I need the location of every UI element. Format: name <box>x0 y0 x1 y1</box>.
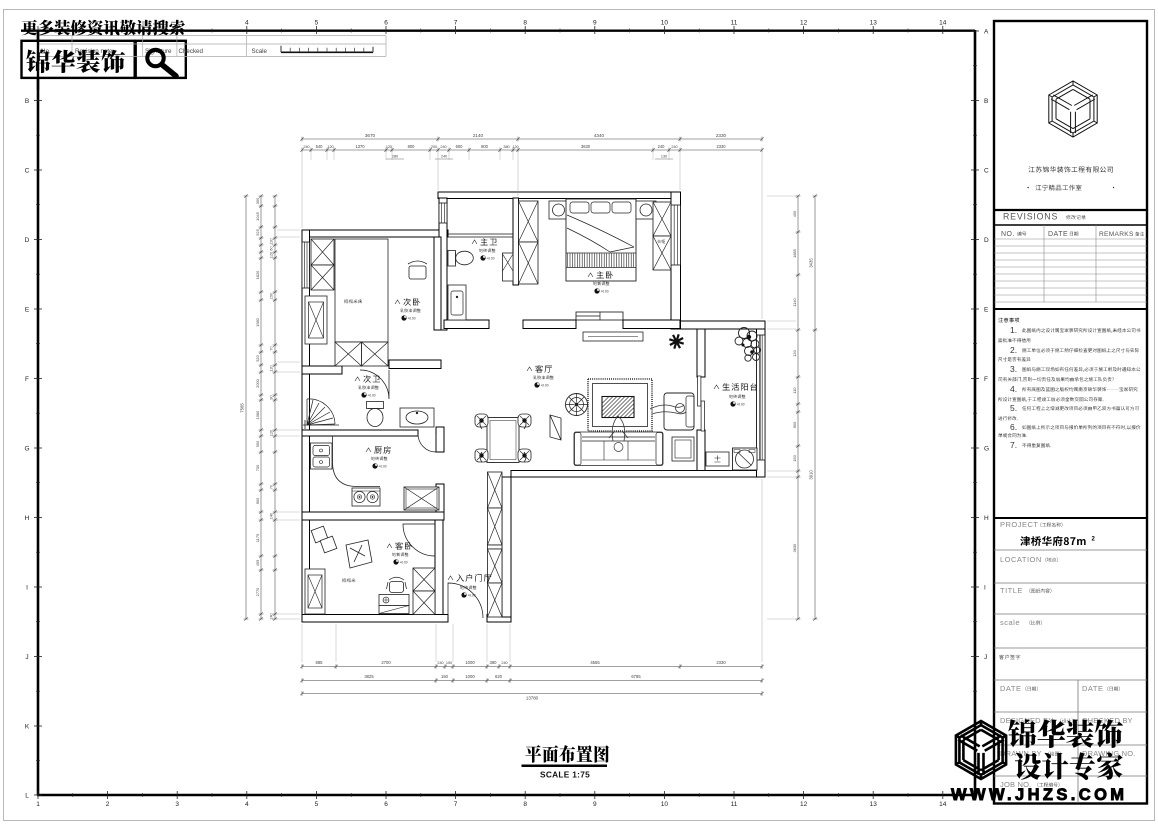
svg-text:90: 90 <box>270 395 274 399</box>
svg-text:NO.: NO. <box>1001 231 1015 238</box>
svg-text:150: 150 <box>441 674 449 679</box>
svg-text:4555: 4555 <box>590 660 600 665</box>
svg-text:C: C <box>25 167 30 174</box>
svg-text:240: 240 <box>441 155 447 159</box>
svg-text:I: I <box>984 584 986 591</box>
svg-text:2000: 2000 <box>255 378 260 387</box>
svg-text:1000: 1000 <box>465 674 475 679</box>
svg-text:120: 120 <box>792 349 797 356</box>
svg-text:+0.00: +0.00 <box>408 317 416 321</box>
svg-text:F: F <box>984 376 988 383</box>
svg-text:70: 70 <box>270 485 274 489</box>
svg-text:8: 8 <box>523 801 527 808</box>
svg-text:G: G <box>984 445 989 452</box>
svg-text:B: B <box>984 98 988 105</box>
svg-text:10: 10 <box>661 20 669 27</box>
svg-text:2330: 2330 <box>716 660 726 665</box>
svg-text:280: 280 <box>392 155 398 159</box>
svg-text:3630: 3630 <box>792 543 797 552</box>
svg-text:7: 7 <box>454 20 458 27</box>
svg-text:1820: 1820 <box>255 270 260 279</box>
svg-text:4: 4 <box>245 20 249 27</box>
svg-text:6: 6 <box>384 801 388 808</box>
svg-text:620: 620 <box>495 674 503 679</box>
svg-text:200: 200 <box>431 145 437 149</box>
svg-text:3435: 3435 <box>809 258 814 268</box>
svg-text:H: H <box>25 515 30 522</box>
svg-text:120: 120 <box>270 430 274 436</box>
svg-text:C: C <box>984 167 989 174</box>
svg-text:730: 730 <box>255 464 260 471</box>
svg-text:1885: 1885 <box>792 249 797 258</box>
svg-text:+0.00: +0.00 <box>601 290 609 294</box>
svg-text:1140: 1140 <box>792 297 797 306</box>
svg-text:14: 14 <box>939 20 947 27</box>
svg-text:800: 800 <box>481 144 489 149</box>
svg-text:8: 8 <box>523 20 527 27</box>
svg-text:300: 300 <box>255 197 260 204</box>
svg-text:600: 600 <box>456 144 464 149</box>
svg-text:H: H <box>984 515 989 522</box>
svg-text:240: 240 <box>658 144 666 149</box>
svg-text:3: 3 <box>175 801 179 808</box>
svg-text:240: 240 <box>270 613 274 619</box>
svg-text:11: 11 <box>731 20 738 27</box>
svg-text:14: 14 <box>939 801 947 808</box>
svg-text:2330: 2330 <box>716 133 727 138</box>
svg-text:540: 540 <box>316 144 324 149</box>
svg-text:+0.00: +0.00 <box>541 384 549 388</box>
svg-text:7565: 7565 <box>240 403 245 413</box>
svg-text:+0.00: +0.00 <box>487 257 495 261</box>
svg-text:Scale: Scale <box>252 48 268 55</box>
svg-text:L: L <box>25 792 29 799</box>
svg-text:3630: 3630 <box>581 144 591 149</box>
svg-text:scale: scale <box>1000 618 1020 627</box>
svg-text:A: A <box>984 28 989 35</box>
svg-text:SCALE 1:75: SCALE 1:75 <box>540 770 590 780</box>
svg-text:220: 220 <box>270 238 274 244</box>
svg-text:70: 70 <box>270 346 274 350</box>
svg-text:13780: 13780 <box>526 696 539 701</box>
svg-text:4: 4 <box>245 801 249 808</box>
svg-text:1: 1 <box>36 801 40 808</box>
svg-text:+0.00: +0.00 <box>468 594 476 598</box>
svg-text:E: E <box>984 306 989 313</box>
svg-text:120: 120 <box>512 145 518 149</box>
svg-text:120: 120 <box>270 252 274 258</box>
svg-text:800: 800 <box>408 144 416 149</box>
svg-text:+0.00: +0.00 <box>379 465 387 469</box>
svg-text:B: B <box>25 98 29 105</box>
svg-text:2700: 2700 <box>381 660 391 665</box>
svg-text:150: 150 <box>446 661 452 665</box>
svg-text:885: 885 <box>316 660 324 665</box>
svg-text:240: 240 <box>501 661 507 665</box>
svg-text:12: 12 <box>800 801 808 808</box>
svg-text:240: 240 <box>303 145 309 149</box>
svg-text:150: 150 <box>270 293 274 299</box>
svg-text:6.: 6. <box>1010 422 1017 432</box>
svg-text:380: 380 <box>490 660 498 665</box>
svg-text:3910: 3910 <box>809 470 814 480</box>
svg-text:J: J <box>984 654 987 661</box>
svg-text:130: 130 <box>661 155 667 159</box>
svg-text:LOCATION: LOCATION <box>1000 555 1042 564</box>
svg-text:TITLE: TITLE <box>1000 586 1023 595</box>
svg-text:3670: 3670 <box>365 133 376 138</box>
svg-text:9: 9 <box>593 20 597 27</box>
svg-text:D: D <box>984 237 989 244</box>
svg-text:150: 150 <box>792 454 797 461</box>
svg-text:4340: 4340 <box>594 133 605 138</box>
svg-text:DATE: DATE <box>1082 684 1103 693</box>
svg-text:K: K <box>25 723 30 730</box>
svg-text:Checked: Checked <box>179 48 204 55</box>
svg-text:PROJECT: PROJECT <box>1000 520 1039 529</box>
svg-text:5: 5 <box>315 801 319 808</box>
svg-text:DATE: DATE <box>1048 231 1068 238</box>
svg-text:380: 380 <box>503 145 509 149</box>
svg-text:D: D <box>25 237 30 244</box>
svg-text:1000: 1000 <box>465 660 475 665</box>
svg-text:140: 140 <box>270 513 274 519</box>
svg-text:500: 500 <box>255 440 260 447</box>
svg-text:240: 240 <box>437 661 443 665</box>
svg-text:240: 240 <box>671 145 677 149</box>
svg-text:REMARKS: REMARKS <box>1099 231 1134 238</box>
svg-text:+0.00: +0.00 <box>737 403 745 407</box>
svg-text:7.: 7. <box>1010 440 1017 450</box>
svg-text:400: 400 <box>792 210 797 217</box>
svg-text:10: 10 <box>661 801 669 808</box>
svg-text:110: 110 <box>792 387 797 394</box>
svg-text:G: G <box>24 445 29 452</box>
svg-text:525: 525 <box>255 229 260 236</box>
svg-text:12: 12 <box>800 20 808 27</box>
svg-text:5.: 5. <box>1010 403 1017 413</box>
svg-text:6785: 6785 <box>631 674 641 679</box>
svg-text:9: 9 <box>593 801 597 808</box>
svg-text:J: J <box>25 654 28 661</box>
svg-text:1580: 1580 <box>255 317 260 326</box>
svg-text:900: 900 <box>255 497 260 504</box>
svg-text:6: 6 <box>384 20 388 27</box>
svg-text:2140: 2140 <box>473 133 484 138</box>
svg-text:2: 2 <box>106 801 110 808</box>
svg-text:120: 120 <box>386 145 392 149</box>
svg-text:240: 240 <box>440 145 446 149</box>
svg-text:120: 120 <box>327 145 333 149</box>
svg-text:1045: 1045 <box>255 212 260 221</box>
svg-text:2330: 2330 <box>716 144 726 149</box>
svg-text:I: I <box>26 584 28 591</box>
svg-text:120: 120 <box>270 365 274 371</box>
svg-text:2770: 2770 <box>255 587 260 596</box>
svg-text:11: 11 <box>731 801 738 808</box>
svg-text:13: 13 <box>870 20 878 27</box>
svg-text:7: 7 <box>454 801 458 808</box>
svg-text:900: 900 <box>792 421 797 428</box>
svg-text:3.: 3. <box>1010 364 1017 374</box>
svg-text:+0.00: +0.00 <box>368 394 376 398</box>
svg-text:4.: 4. <box>1010 384 1017 394</box>
svg-text:1.: 1. <box>1010 325 1017 335</box>
svg-text:3825: 3825 <box>364 674 374 679</box>
svg-text:1060: 1060 <box>255 410 260 419</box>
svg-text:WWW.JHZS.COM: WWW.JHZS.COM <box>951 786 1127 804</box>
svg-text:1175: 1175 <box>255 534 260 542</box>
svg-text:+0.00: +0.00 <box>400 561 408 565</box>
svg-text:E: E <box>25 306 30 313</box>
svg-text:455: 455 <box>255 560 260 567</box>
svg-text:2.: 2. <box>1010 345 1017 355</box>
svg-text:1370: 1370 <box>355 144 365 149</box>
svg-text:520: 520 <box>255 354 260 361</box>
svg-text:REVISIONS: REVISIONS <box>1003 212 1058 222</box>
svg-text:DATE: DATE <box>1000 684 1021 693</box>
svg-text:60: 60 <box>270 246 274 250</box>
svg-text:5: 5 <box>315 20 319 27</box>
svg-text:F: F <box>25 376 29 383</box>
svg-text:13: 13 <box>870 801 878 808</box>
